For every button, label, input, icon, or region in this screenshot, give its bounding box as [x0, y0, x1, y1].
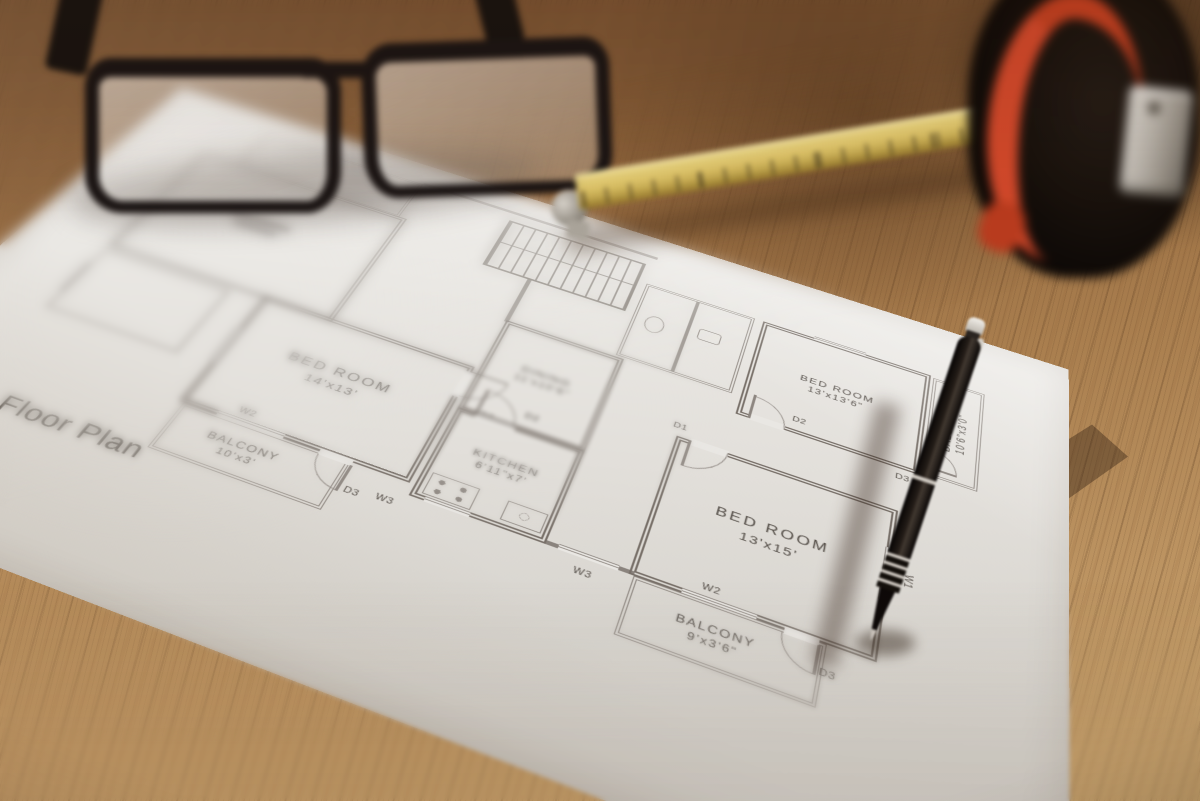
pen-tip [867, 629, 876, 642]
black-rimmed-eyeglasses [25, 0, 585, 230]
pen-taper [866, 587, 895, 634]
rule-hinge-tab [566, 219, 590, 240]
glasses-bridge [303, 62, 373, 108]
tape-clip-rivet [1148, 102, 1160, 114]
photo-scene: BED ROOM 14'x13' D2 BALCONY 10'x3' W2 D3 [0, 0, 1200, 801]
pen-grip-rings [876, 552, 910, 594]
tape-measure [968, 0, 1200, 295]
